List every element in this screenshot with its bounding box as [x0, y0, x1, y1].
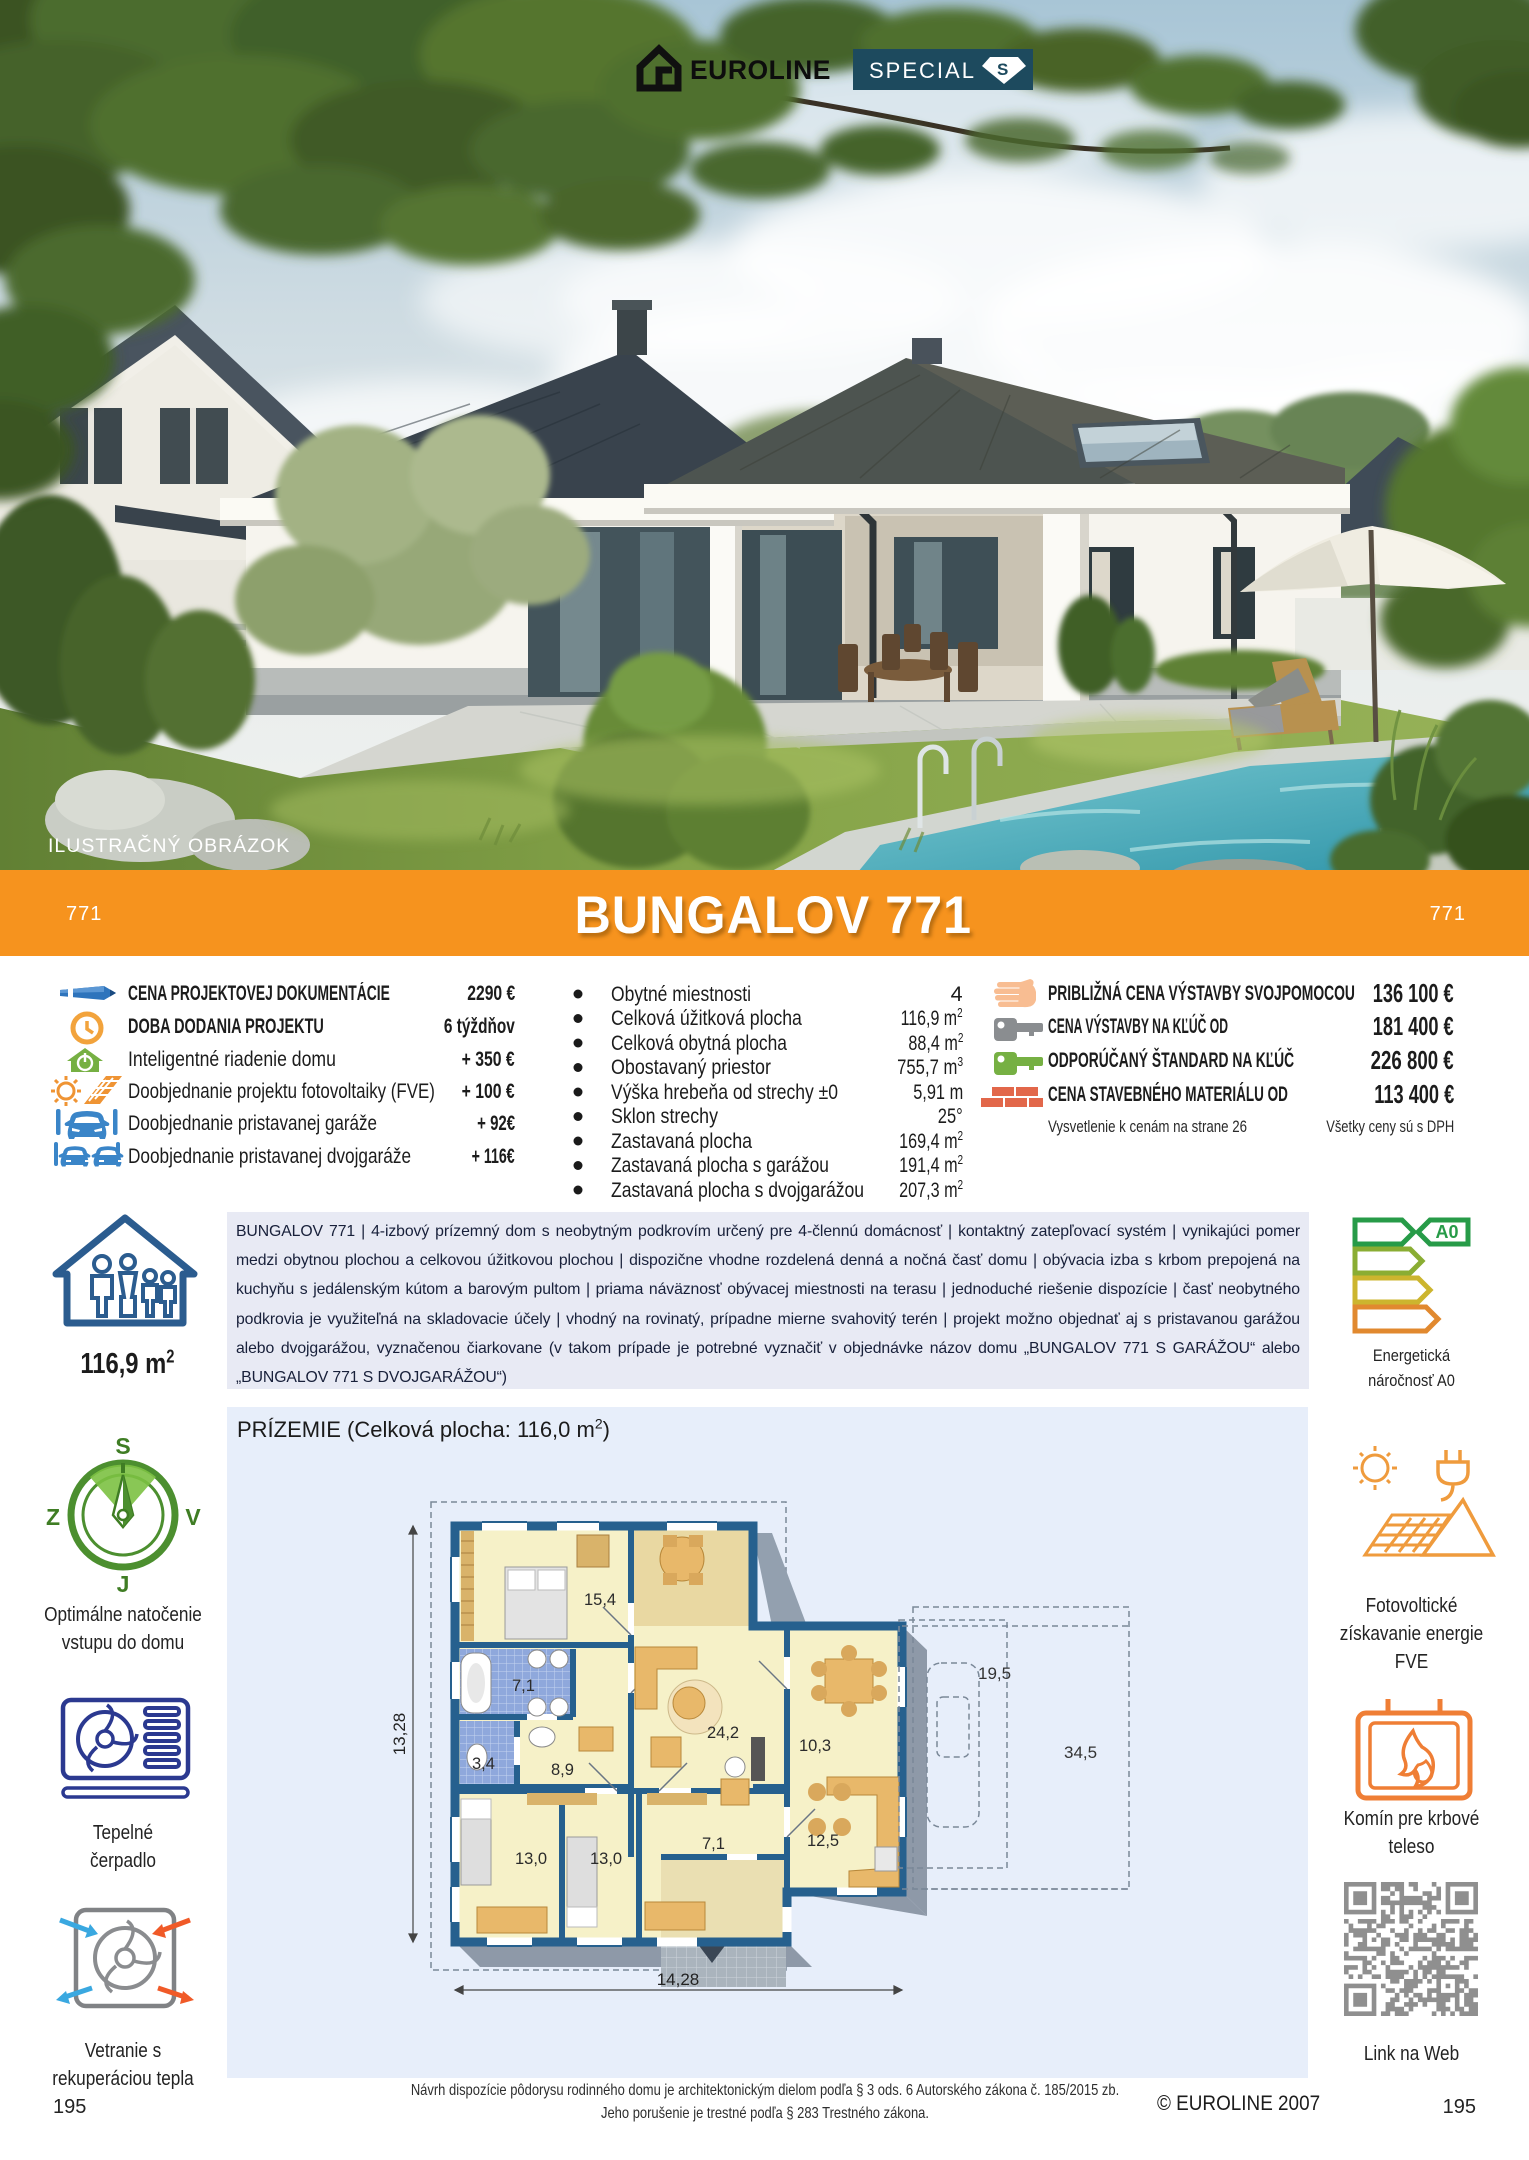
svg-text:Z: Z: [46, 1504, 60, 1530]
svg-text:7,1: 7,1: [512, 1677, 535, 1695]
svg-text:J: J: [117, 1571, 130, 1597]
svg-text:10,3: 10,3: [799, 1737, 831, 1755]
svg-text:14,28: 14,28: [657, 1970, 700, 1989]
svg-text:13,28: 13,28: [390, 1713, 409, 1756]
svg-text:8,9: 8,9: [551, 1761, 574, 1779]
svg-text:19,5: 19,5: [978, 1664, 1011, 1683]
svg-text:12,5: 12,5: [807, 1832, 839, 1850]
svg-text:15,4: 15,4: [584, 1591, 616, 1609]
svg-text:7,1: 7,1: [702, 1835, 725, 1853]
svg-text:A0: A0: [1435, 1222, 1458, 1242]
svg-text:24,2: 24,2: [707, 1724, 739, 1742]
svg-text:S: S: [115, 1433, 130, 1459]
svg-text:13,0: 13,0: [515, 1850, 547, 1868]
svg-text:V: V: [185, 1504, 201, 1530]
svg-text:3,4: 3,4: [472, 1755, 495, 1773]
svg-text:34,5: 34,5: [1064, 1743, 1097, 1762]
svg-text:13,0: 13,0: [590, 1850, 622, 1868]
